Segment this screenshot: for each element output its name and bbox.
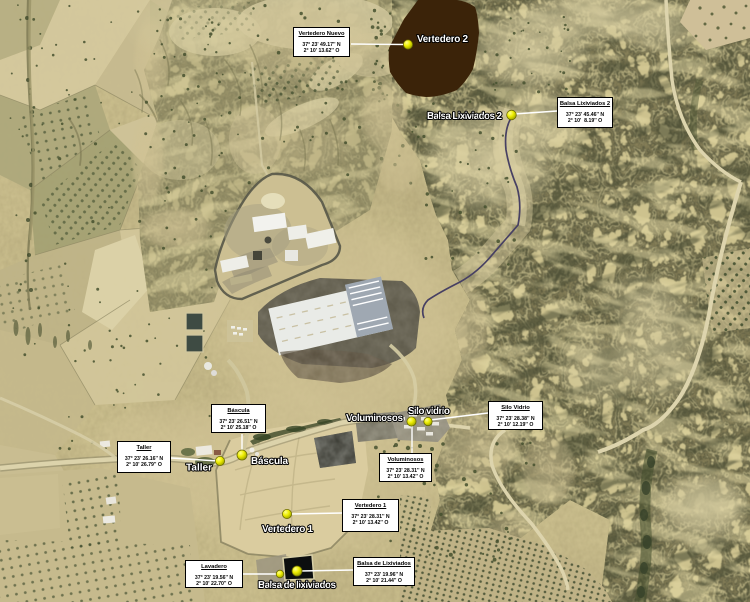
- svg-text:Báscula: Báscula: [251, 456, 288, 467]
- svg-text:Balsa Lixiviados 2: Balsa Lixiviados 2: [427, 111, 502, 122]
- svg-text:Balsa de lixiviados: Balsa de lixiviados: [258, 580, 336, 591]
- svg-text:Vertedero 2: Vertedero 2: [417, 34, 468, 45]
- svg-text:Taller: Taller: [186, 463, 212, 474]
- svg-text:Vertedero 1: Vertedero 1: [262, 524, 313, 535]
- svg-text:Voluminosos: Voluminosos: [346, 413, 403, 424]
- svg-text:Silo vidrio: Silo vidrio: [408, 406, 450, 417]
